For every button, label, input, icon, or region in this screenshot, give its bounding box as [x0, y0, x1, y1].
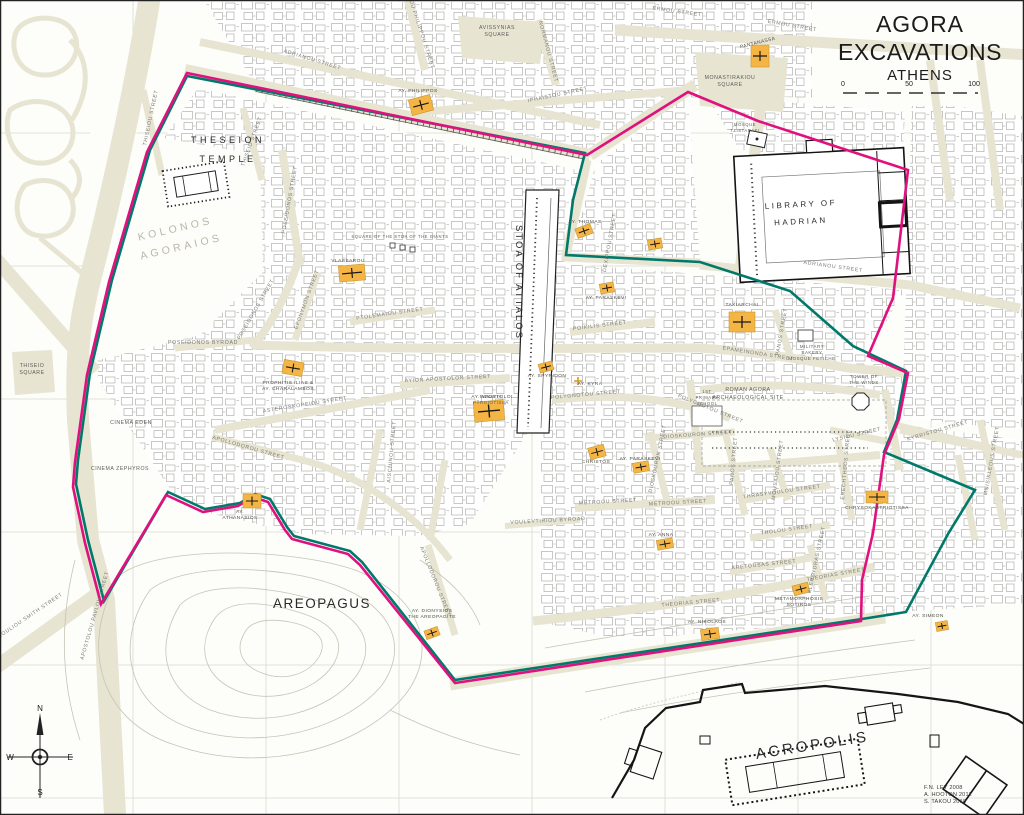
primary-school-label: SCHOOL — [697, 401, 718, 406]
church-label: THE AREOPAGITE — [408, 614, 456, 620]
church-label: PROPHITIS ILIAS & — [262, 380, 313, 386]
avissynias-square-label: SQUARE — [484, 32, 509, 38]
church-label: AY. PARASKEVI — [586, 295, 627, 301]
church-marker — [338, 264, 365, 282]
pyrgiotissa-label: PYRGIOTISSA — [473, 400, 509, 405]
map-canvas: ERMOU STREET ERMOU STREET ADRIANOU STREE… — [0, 0, 1024, 815]
library-of-hadrian-plan — [733, 136, 910, 283]
church-label: TAXIARCHAI — [726, 302, 759, 308]
church-marker — [243, 494, 261, 508]
thiseio-square-label: SQUARE — [19, 370, 44, 376]
church-label: VLASSAROU — [331, 258, 365, 264]
areopagus-label: AREOPAGUS — [273, 596, 371, 611]
stoa-of-attalos-label: STOA OF ATTALOS — [513, 225, 524, 340]
giants-square-label: SQUARE OF THE STOA OF THE GIANTS — [351, 234, 448, 239]
military-bakery-label: MILITARY — [800, 344, 824, 349]
mosque-fetiche-building — [798, 330, 813, 341]
military-bakery-label: BAKERY — [801, 350, 822, 355]
credit-line: S. TAKOU 2018 — [924, 799, 966, 805]
church-label: AY. PARASKEVI — [620, 456, 661, 462]
church-marker — [866, 491, 888, 503]
church-label: AY. SPYRIDON — [528, 373, 567, 379]
church-label: AY. — [236, 509, 244, 515]
church-label: AY. ANNA — [649, 532, 674, 538]
church-marker — [729, 312, 755, 332]
church-label: CHRISTOS — [582, 459, 611, 465]
theseion-temple-label: TEMPLE — [199, 154, 256, 164]
roman-agora-label: ARCHAEOLOGICAL SITE — [712, 395, 783, 401]
mosque-tzistaraki-label: TZISTARAKI — [730, 128, 759, 133]
church-marker — [647, 238, 663, 250]
church-label: AY. THOMAS — [568, 219, 601, 225]
church-marker — [599, 282, 615, 294]
church-marker — [282, 359, 304, 376]
avissynias-square-label: AVISSYNIAS — [479, 25, 515, 31]
cinema-zephyros-label: CINEMA ZEPHYROS — [91, 466, 149, 472]
map-title-line1: AGORA — [876, 11, 964, 37]
map-title-line2: EXCAVATIONS — [838, 39, 1002, 65]
mosque-tzistaraki-label: MOSQUE — [734, 122, 756, 127]
military-bakery-label: MOSQUE FETICHE — [788, 356, 835, 361]
monastiraki-square-label: SQUARE — [717, 82, 742, 88]
church-label: AY. NIKOLAOS — [688, 619, 726, 625]
church-marker — [935, 621, 948, 632]
church-marker — [700, 627, 719, 640]
avissynias-square-area — [458, 16, 545, 64]
church-label: AY. PHILIPPOS — [398, 88, 438, 94]
tower-of-winds-label: THE WINDS — [849, 380, 879, 385]
compass-n: N — [37, 704, 43, 713]
church-label: ATHANASIOS — [222, 515, 257, 521]
church-label: METAMORPHOSIS — [775, 596, 824, 602]
compass-e: E — [67, 753, 72, 762]
church-label: AY. KYRA — [578, 381, 603, 387]
church-marker — [751, 45, 769, 67]
primary-school-label: 1ST — [702, 389, 711, 394]
church-label: AY. APOSTOLOI — [471, 394, 512, 400]
compass-w: W — [6, 753, 14, 762]
monastiraki-square-label: MONASTIRAKIOU — [705, 75, 756, 81]
primary-school-label: PRIMARY — [696, 395, 719, 400]
agora-excavations-map: ERMOU STREET ERMOU STREET ADRIANOU STREE… — [0, 0, 1024, 815]
compass-s: S — [37, 788, 42, 797]
church-label: AY. SIMEON — [912, 613, 944, 619]
tower-of-the-winds-plan — [852, 393, 869, 410]
street-label: POSEIDONOS BYROAD — [168, 340, 238, 346]
church-label: CHRYSOKASTRIOTISSA — [845, 505, 909, 511]
church-label: AY. CHARALAMBOS — [262, 386, 314, 392]
cinema-eden-label: CINEMA EDEN — [110, 420, 152, 426]
theseion-temple-label: THESEION — [191, 135, 265, 145]
scale-tick-100: 100 — [968, 81, 980, 88]
tower-of-winds-label: TOWER OF — [850, 374, 878, 379]
church-label: SOTIROS — [787, 602, 812, 608]
roman-agora-label: ROMAN AGORA — [725, 387, 770, 393]
map-title-line3: ATHENS — [887, 67, 953, 84]
scale-tick-50: 50 — [905, 81, 913, 88]
credit-line: A. HOOTON 2012 — [924, 792, 972, 798]
scale-tick-0: 0 — [841, 81, 845, 88]
thiseio-square-label: THISEIO — [20, 363, 45, 369]
church-label: AY. DIONYSIOS — [412, 608, 453, 614]
credit-line: F.N. LEY 2008 — [924, 785, 963, 791]
